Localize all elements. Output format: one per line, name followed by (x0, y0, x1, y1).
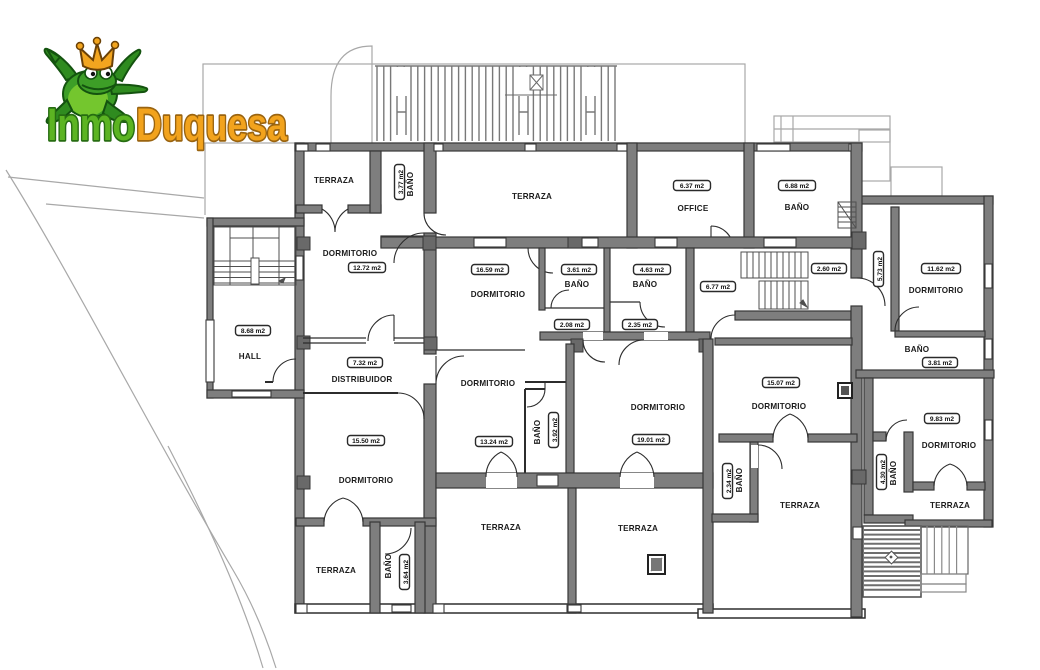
svg-text:6.37 m2: 6.37 m2 (680, 183, 705, 190)
svg-text:TERRAZA: TERRAZA (618, 524, 658, 533)
svg-text:2.35 m2: 2.35 m2 (628, 322, 653, 329)
svg-text:6.88 m2: 6.88 m2 (785, 183, 810, 190)
svg-text:BAÑO: BAÑO (406, 172, 415, 197)
svg-text:2.08 m2: 2.08 m2 (560, 322, 585, 329)
svg-text:BAÑO: BAÑO (633, 280, 658, 289)
svg-text:DORMITORIO: DORMITORIO (631, 403, 685, 412)
svg-text:3.64 m2: 3.64 m2 (403, 560, 410, 585)
svg-text:15.07 m2: 15.07 m2 (767, 380, 795, 387)
svg-text:9.83 m2: 9.83 m2 (930, 416, 955, 423)
svg-text:4.30 m2: 4.30 m2 (880, 460, 887, 485)
svg-text:6.77 m2: 6.77 m2 (706, 284, 731, 291)
svg-text:19.01 m2: 19.01 m2 (637, 437, 665, 444)
svg-text:3.92 m2: 3.92 m2 (552, 418, 559, 443)
svg-text:TERRAZA: TERRAZA (316, 566, 356, 575)
svg-text:BAÑO: BAÑO (533, 420, 542, 445)
svg-text:DISTRIBUIDOR: DISTRIBUIDOR (332, 375, 393, 384)
svg-text:2.34 m2: 2.34 m2 (726, 469, 733, 494)
svg-text:DORMITORIO: DORMITORIO (909, 286, 963, 295)
svg-text:TERRAZA: TERRAZA (930, 501, 970, 510)
svg-text:TERRAZA: TERRAZA (780, 501, 820, 510)
svg-text:BAÑO: BAÑO (735, 468, 744, 493)
svg-text:13.24 m2: 13.24 m2 (480, 439, 508, 446)
svg-text:4.63 m2: 4.63 m2 (640, 267, 665, 274)
svg-text:TERRAZA: TERRAZA (512, 192, 552, 201)
svg-text:8.68 m2: 8.68 m2 (241, 328, 266, 335)
svg-text:DORMITORIO: DORMITORIO (922, 441, 976, 450)
svg-text:TERRAZA: TERRAZA (481, 523, 521, 532)
svg-text:15.50 m2: 15.50 m2 (352, 438, 380, 445)
svg-text:3.81 m2: 3.81 m2 (928, 360, 953, 367)
svg-text:2.60 m2: 2.60 m2 (817, 266, 842, 273)
svg-text:12.72 m2: 12.72 m2 (353, 265, 381, 272)
svg-text:3.77 m2: 3.77 m2 (398, 170, 405, 195)
svg-text:TERRAZA: TERRAZA (314, 176, 354, 185)
svg-text:DORMITORIO: DORMITORIO (471, 290, 525, 299)
svg-text:DORMITORIO: DORMITORIO (339, 476, 393, 485)
svg-text:DORMITORIO: DORMITORIO (461, 379, 515, 388)
svg-text:3.61 m2: 3.61 m2 (567, 267, 592, 274)
svg-text:Duquesa: Duquesa (136, 99, 288, 150)
svg-text:DORMITORIO: DORMITORIO (323, 249, 377, 258)
svg-text:DORMITORIO: DORMITORIO (752, 402, 806, 411)
svg-text:Inmo: Inmo (47, 99, 135, 150)
svg-text:BAÑO: BAÑO (905, 345, 930, 354)
svg-text:7.32 m2: 7.32 m2 (353, 360, 378, 367)
svg-text:5.73 m2: 5.73 m2 (877, 257, 884, 282)
svg-text:OFFICE: OFFICE (678, 204, 709, 213)
svg-text:HALL: HALL (239, 352, 261, 361)
svg-text:BAÑO: BAÑO (384, 554, 393, 579)
svg-text:BAÑO: BAÑO (889, 461, 898, 486)
svg-text:BAÑO: BAÑO (785, 203, 810, 212)
svg-text:11.62 m2: 11.62 m2 (927, 266, 955, 273)
svg-text:BAÑO: BAÑO (565, 280, 590, 289)
svg-text:16.59 m2: 16.59 m2 (476, 267, 504, 274)
